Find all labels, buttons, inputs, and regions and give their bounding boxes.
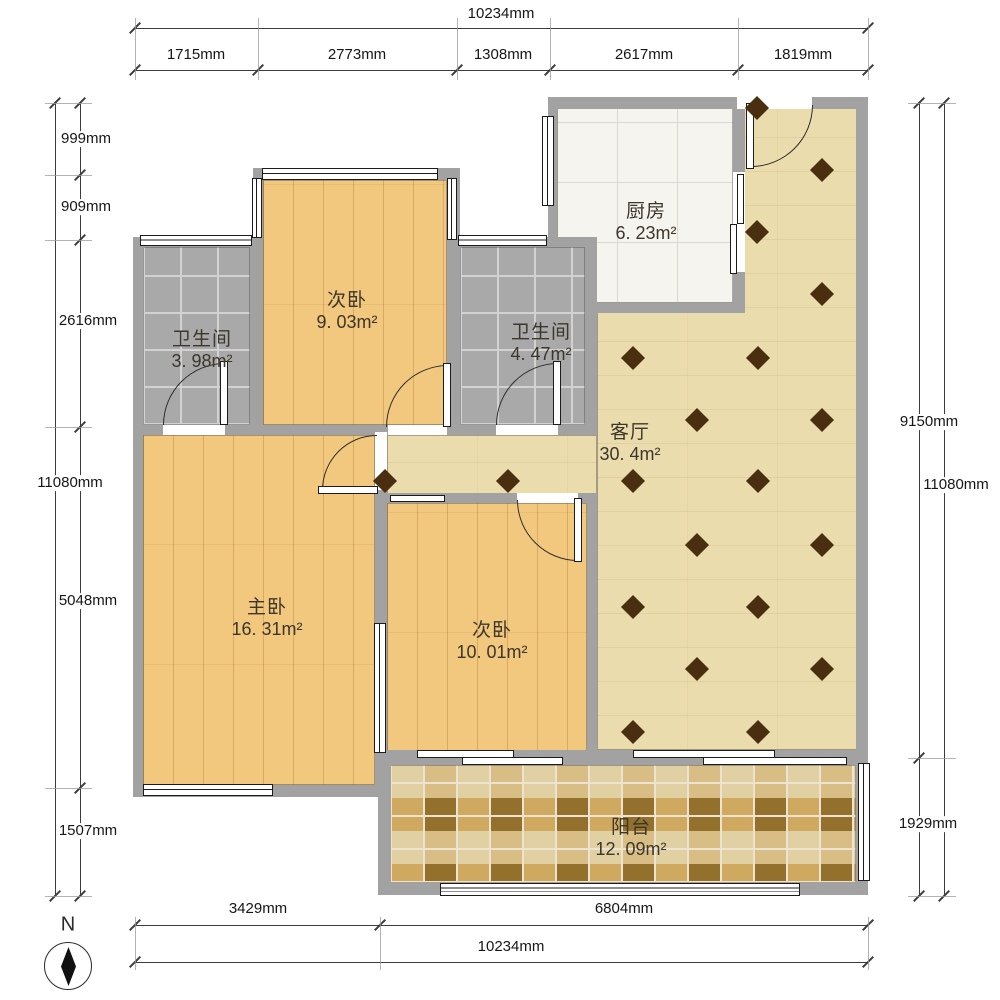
room-name: 主卧 (231, 592, 302, 619)
room-name: 卫生间 (510, 317, 571, 344)
dimension-line (135, 70, 868, 71)
room-name: 次卧 (316, 285, 377, 312)
dimension-extension-line (738, 18, 739, 80)
bedroom-2-balcony-sliding-door-panel (462, 757, 563, 765)
master-door-leaf (318, 486, 378, 494)
bathroom-2-door-opening (496, 425, 558, 435)
dimension-extension-line (868, 18, 869, 80)
dim-top-seg-4: 2617mm (613, 47, 675, 63)
dim-top-overall: 10234mm (466, 6, 537, 22)
room-name: 厨房 (615, 196, 676, 223)
dimension-extension-line (135, 917, 136, 970)
dimension-extension-line (135, 18, 136, 80)
bedroom-1-window-top (262, 168, 438, 180)
dimension-extension-line (45, 175, 92, 176)
dimension-extension-line (45, 788, 92, 789)
dimension-extension-line (908, 103, 956, 104)
master-bedroom-window (143, 784, 273, 796)
master-bedroom-2-partition-window (374, 623, 386, 753)
room-area: 10. 01m² (456, 642, 527, 663)
room-area: 3. 98m² (171, 351, 232, 372)
compass-icon (44, 942, 92, 990)
room-name: 阳台 (595, 812, 666, 839)
dimension-extension-line (457, 18, 458, 80)
dim-right-overall: 11080mm (921, 477, 991, 493)
dim-top-seg-5: 1819mm (772, 47, 834, 63)
room-label-kitchen: 厨房 6. 23m² (615, 196, 676, 244)
dimension-line (919, 103, 920, 896)
living-balcony-sliding-door-panel (703, 757, 847, 765)
balcony-side-window (858, 763, 870, 881)
room-area: 6. 23m² (615, 223, 676, 244)
dimension-extension-line (908, 758, 956, 759)
dim-right-seg-1: 9150mm (898, 414, 960, 430)
dimension-line (55, 103, 56, 896)
room-area: 9. 03m² (316, 312, 377, 333)
room-label-master-bedroom: 主卧 16. 31m² (231, 592, 302, 640)
dimension-line (80, 103, 81, 896)
room-area: 4. 47m² (510, 344, 571, 365)
kitchen-sliding-door-panel (730, 224, 737, 274)
dim-bottom-seg-1: 3429mm (227, 901, 289, 917)
bedroom-2-transom-window (390, 495, 445, 502)
room-name: 次卧 (456, 615, 527, 642)
room-label-balcony: 阳台 12. 09m² (595, 812, 666, 860)
dimension-extension-line (45, 240, 92, 241)
bathroom-2-door-leaf (553, 361, 561, 425)
kitchen-sliding-door-panel (737, 174, 744, 224)
dim-top-seg-1: 1715mm (165, 47, 227, 63)
dimension-line (135, 962, 868, 963)
bathroom-2-window (458, 235, 547, 246)
dimension-extension-line (45, 427, 92, 428)
dim-left-seg-2: 909mm (59, 199, 113, 215)
dim-top-seg-3: 1308mm (472, 47, 534, 63)
dimension-extension-line (45, 896, 92, 897)
hallway-floor (387, 435, 597, 497)
dimension-extension-line (908, 896, 956, 897)
room-name: 客厅 (599, 417, 660, 444)
dimension-line (944, 103, 945, 896)
bedroom-1-window-left (252, 178, 262, 238)
top-wall (548, 97, 868, 109)
room-area: 16. 31m² (231, 619, 302, 640)
bedroom-2-door-leaf (574, 498, 582, 562)
dimension-extension-line (868, 917, 869, 970)
bedroom-1-door-leaf (443, 363, 451, 427)
dim-left-seg-5: 1507mm (57, 823, 119, 839)
room-area: 30. 4m² (599, 444, 660, 465)
dimension-line (135, 28, 868, 29)
dimension-extension-line (258, 18, 259, 80)
dim-top-seg-2: 2773mm (326, 47, 388, 63)
room-label-bedroom-2: 次卧 10. 01m² (456, 615, 527, 663)
room-label-living-room: 客厅 30. 4m² (599, 417, 660, 465)
bedroom-1-window-right (447, 178, 457, 240)
room-label-bathroom-2: 卫生间 4. 47m² (510, 317, 571, 365)
bathroom-1-door-opening (163, 425, 225, 435)
dimension-extension-line (45, 103, 92, 104)
dimension-extension-line (380, 917, 381, 970)
balcony-window (440, 883, 800, 896)
bathroom-1-window (140, 235, 252, 246)
dim-left-seg-3: 2616mm (57, 313, 119, 329)
kitchen-window (542, 116, 554, 206)
dimension-line (135, 925, 868, 926)
dim-left-seg-1: 999mm (59, 131, 113, 147)
room-name: 卫生间 (171, 324, 232, 351)
dim-left-overall: 11080mm (35, 475, 105, 491)
room-label-bedroom-1: 次卧 9. 03m² (316, 285, 377, 333)
dim-right-seg-2: 1929mm (897, 816, 959, 832)
dimension-extension-line (550, 18, 551, 80)
dim-bottom-seg-2: 6804mm (593, 901, 655, 917)
room-area: 12. 09m² (595, 839, 666, 860)
compass-needle-icon (61, 947, 76, 986)
compass-north-label: N (61, 914, 75, 937)
floor-plan: 厨房 6. 23m² 次卧 9. 03m² 卫生间 3. 98m² 卫生间 4.… (0, 0, 1000, 1000)
room-label-bathroom-1: 卫生间 3. 98m² (171, 324, 232, 372)
dim-left-seg-4: 5048mm (57, 593, 119, 609)
dim-bottom-overall: 10234mm (476, 939, 547, 955)
